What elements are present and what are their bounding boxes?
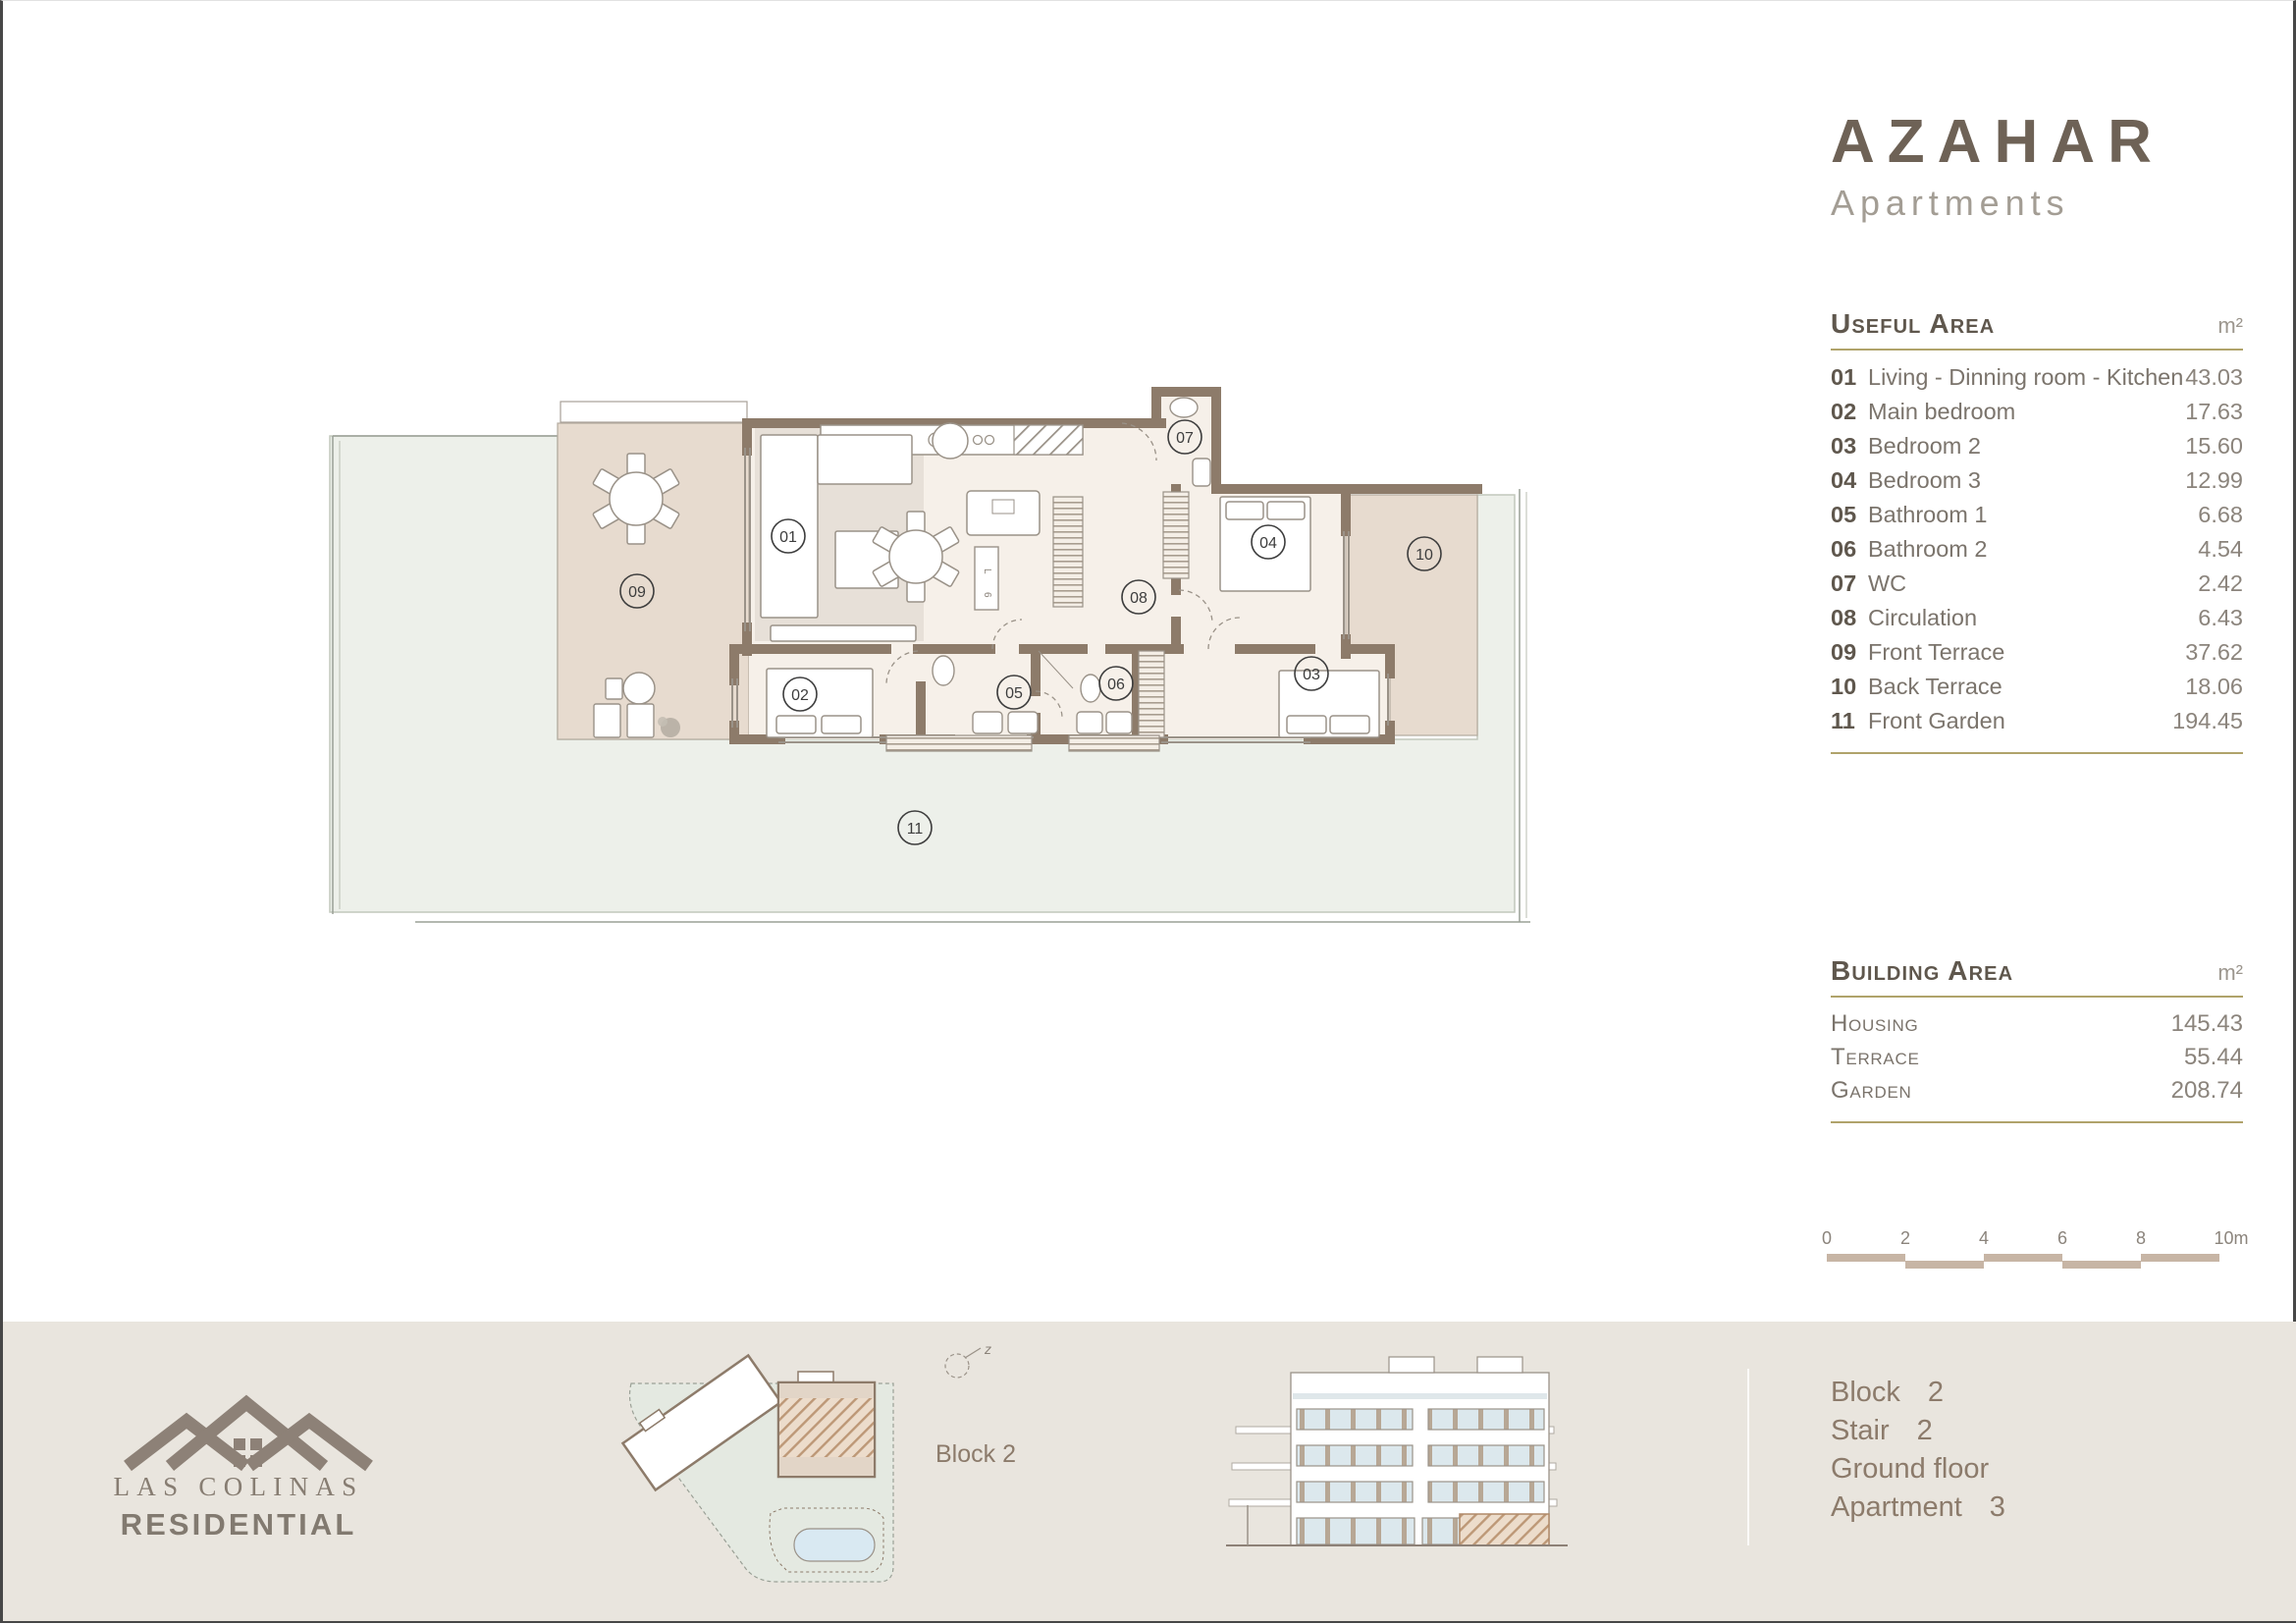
room-label-08: 08 [1130, 590, 1148, 607]
room-label-02: 02 [791, 687, 809, 704]
scale-tick-10m: 10m [2214, 1228, 2248, 1248]
gold-divider [1831, 752, 2243, 754]
row-num: 06 [1831, 532, 1868, 567]
row-num: 10 [1831, 670, 1868, 704]
info-row: Apartment3 [1831, 1489, 2016, 1527]
useful-area-title: Useful Area [1831, 308, 1995, 340]
beds [767, 497, 1379, 737]
info-value: 2 [1928, 1374, 1944, 1412]
row-value: 18.06 [2185, 670, 2243, 704]
row-value: 2.42 [2198, 567, 2243, 601]
row-value: 194.45 [2172, 704, 2243, 738]
table-row: 08Circulation6.43 [1831, 601, 2243, 635]
row-label: Living - Dinning room - Kitchen [1868, 360, 2185, 395]
row-num: 03 [1831, 429, 1868, 463]
gold-divider [1831, 349, 2243, 351]
info-row: Ground floor [1831, 1450, 2016, 1489]
closets [886, 492, 1189, 751]
table-row: Housing145.43 [1831, 1007, 2243, 1041]
table-row: 09Front Terrace37.62 [1831, 635, 2243, 670]
kitchen [821, 425, 1083, 535]
row-value: 6.68 [2198, 498, 2243, 532]
brand-block: AZAHAR Apartments [1831, 107, 2253, 224]
building-area-title: Building Area [1831, 955, 2013, 987]
info-label: Apartment [1831, 1489, 1962, 1527]
row-value: 37.62 [2185, 635, 2243, 670]
back-terrace-area [1346, 495, 1477, 735]
row-num: 09 [1831, 635, 1868, 670]
row-label: Bedroom 2 [1868, 429, 2185, 463]
dining-table [873, 512, 960, 602]
room-label-10: 10 [1415, 547, 1433, 564]
info-value: 2 [1917, 1412, 1933, 1450]
row-label: Bathroom 1 [1868, 498, 2198, 532]
row-num: 11 [1831, 704, 1868, 738]
row-value: 145.43 [2171, 1007, 2243, 1041]
room-label-03: 03 [1303, 667, 1320, 683]
laundry-letter-l: L [982, 568, 992, 574]
front-terrace-area [558, 423, 749, 739]
room-label-09: 09 [628, 584, 646, 601]
row-value: 208.74 [2171, 1074, 2243, 1108]
room-label-05: 05 [1005, 685, 1023, 702]
row-label: Back Terrace [1868, 670, 2185, 704]
info-label: Block [1831, 1374, 1900, 1412]
table-row: 05Bathroom 16.68 [1831, 498, 2243, 532]
room-label-11: 11 [907, 821, 924, 838]
gold-divider [1831, 1121, 2243, 1123]
floorplan-sheet: { "brand": {"title": "AZAHAR", "subtitle… [0, 0, 2296, 1623]
building-area-unit: m² [2217, 960, 2243, 986]
row-value: 4.54 [2198, 532, 2243, 567]
row-label: Front Terrace [1868, 635, 2185, 670]
room-label-06: 06 [1107, 677, 1125, 693]
door-arcs [886, 423, 1240, 718]
logo-line2: RESIDENTIAL [101, 1507, 376, 1543]
row-label: Circulation [1868, 601, 2198, 635]
row-value: 17.63 [2185, 395, 2243, 429]
row-label: Front Garden [1868, 704, 2172, 738]
windows [732, 448, 1388, 742]
row-value: 43.03 [2185, 360, 2243, 395]
table-row: 02Main bedroom17.63 [1831, 395, 2243, 429]
row-label: Main bedroom [1868, 395, 2185, 429]
row-num: 08 [1831, 601, 1868, 635]
table-row: 01Living - Dinning room - Kitchen43.03 [1831, 360, 2243, 395]
row-label: Garden [1831, 1074, 2171, 1108]
laundry-letter-6: 6 [982, 592, 992, 598]
row-label: Bathroom 2 [1868, 532, 2198, 567]
row-value: 12.99 [2185, 463, 2243, 498]
row-value: 6.43 [2198, 601, 2243, 635]
building-area-table: Building Area m² Housing145.43 Terrace55… [1831, 955, 2243, 1133]
scale-tick-0: 0 [1822, 1228, 1832, 1248]
row-label: Housing [1831, 1007, 2171, 1041]
apartment-info-block: Block2 Stair2 Ground floor Apartment3 [1831, 1374, 2016, 1527]
row-value: 55.44 [2184, 1041, 2243, 1074]
row-label: Terrace [1831, 1041, 2184, 1074]
bath-fixtures [933, 398, 1210, 733]
info-value: 3 [1990, 1489, 2005, 1527]
room-labels: 01 02 03 04 05 06 07 08 09 10 11 [620, 420, 1441, 844]
gold-divider [1831, 996, 2243, 998]
scale-tick-6: 6 [2057, 1228, 2067, 1248]
living-furniture [761, 423, 968, 641]
info-row: Block2 [1831, 1374, 2016, 1412]
table-row: 07WC2.42 [1831, 567, 2243, 601]
row-num: 04 [1831, 463, 1868, 498]
row-value: 15.60 [2185, 429, 2243, 463]
row-label: Bedroom 3 [1868, 463, 2185, 498]
las-colinas-logo-text: LAS COLINAS RESIDENTIAL [101, 1472, 376, 1543]
terrace-furniture [593, 454, 680, 737]
useful-area-unit: m² [2217, 313, 2243, 339]
table-row: 11Front Garden194.45 [1831, 704, 2243, 738]
scale-tick-8: 8 [2136, 1228, 2146, 1248]
useful-area-table: Useful Area m² 01Living - Dinning room -… [1831, 308, 2243, 764]
table-row: Terrace55.44 [1831, 1041, 2243, 1074]
apartment-interior [749, 423, 1390, 739]
scale-bar: 0 2 4 6 8 10m [1822, 1228, 2249, 1269]
row-label: WC [1868, 567, 2198, 601]
room-label-07: 07 [1176, 430, 1194, 447]
row-num: 05 [1831, 498, 1868, 532]
scale-tick-4: 4 [1979, 1228, 1989, 1248]
table-row: 10Back Terrace18.06 [1831, 670, 2243, 704]
logo-line1: LAS COLINAS [101, 1472, 376, 1502]
room-label-01: 01 [779, 529, 797, 546]
scale-tick-2: 2 [1900, 1228, 1910, 1248]
brand-title: AZAHAR [1831, 107, 2253, 177]
info-label: Ground floor [1831, 1450, 1989, 1489]
brand-subtitle: Apartments [1831, 183, 2253, 224]
table-row: 03Bedroom 215.60 [1831, 429, 2243, 463]
info-label: Stair [1831, 1412, 1890, 1450]
info-row: Stair2 [1831, 1412, 2016, 1450]
row-num: 01 [1831, 360, 1868, 395]
row-num: 02 [1831, 395, 1868, 429]
row-num: 07 [1831, 567, 1868, 601]
footer-divider [1747, 1369, 1749, 1545]
table-row: Garden208.74 [1831, 1074, 2243, 1108]
table-row: 04Bedroom 312.99 [1831, 463, 2243, 498]
front-garden-area [330, 436, 1515, 912]
room-label-04: 04 [1259, 535, 1277, 552]
walls [734, 392, 1477, 739]
floor-plan: L 6 [330, 389, 1530, 922]
table-row: 06Bathroom 24.54 [1831, 532, 2243, 567]
